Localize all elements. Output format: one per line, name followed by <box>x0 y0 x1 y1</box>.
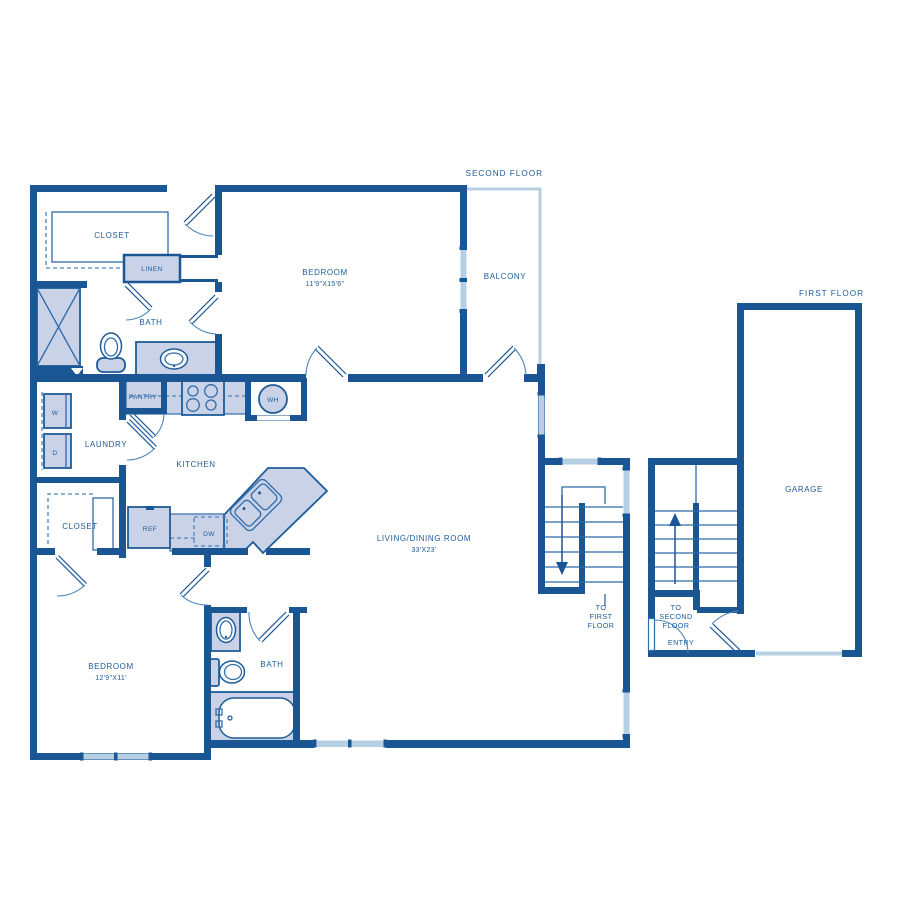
room-dims-bedroom-second: 12'9"X11' <box>95 675 126 682</box>
floor-plan-canvas: SECOND FLOOR FIRST FLOOR CLOSET LINEN BA… <box>0 0 900 900</box>
sink-master-drain <box>173 365 175 367</box>
room-label-bath-master: BATH <box>139 318 162 327</box>
stairwell-top-window <box>561 459 599 465</box>
stairs-note-2f-line1: TO <box>596 603 607 612</box>
stair-arrow-down-head <box>556 562 568 575</box>
room-label-bath-second: BATH <box>260 660 283 669</box>
room-dims-living: 33'X23' <box>411 547 436 554</box>
door-bath-second <box>249 612 289 642</box>
appliance-label-wh: WH <box>267 397 279 404</box>
door-bath-master <box>189 295 218 334</box>
door-closet-master <box>125 283 152 320</box>
appliance-label-dryer: D <box>52 450 57 457</box>
stairs-note-2f-line3: FLOOR <box>588 621 615 630</box>
room-label-closet-master: CLOSET <box>94 231 130 240</box>
stairs-note-1f-line2: SECOND <box>659 612 692 621</box>
appliance-label-washer: W <box>52 410 59 417</box>
stair-arrow-up-head <box>669 513 681 526</box>
toilet-master-base <box>97 358 125 372</box>
kitchen-island <box>224 468 327 553</box>
appliance-label-dw: DW <box>203 531 215 538</box>
stairs-note-1f-line3: FLOOR <box>663 621 690 630</box>
door-garage-entry <box>710 611 740 653</box>
stairs-note-2f-line2: FIRST <box>590 612 613 621</box>
room-label-entry: ENTRY <box>668 638 694 647</box>
appliance-label-ref: REF <box>143 526 157 533</box>
linen-closet <box>124 255 218 282</box>
floor-plan: SECOND FLOOR FIRST FLOOR CLOSET LINEN BA… <box>0 0 900 900</box>
door-laundry <box>127 420 157 461</box>
stairwell-right-window <box>624 469 630 516</box>
living-right-window <box>624 691 630 736</box>
living-side-window <box>539 394 545 436</box>
stair-rail-2f <box>562 487 605 504</box>
room-label-laundry: LAUNDRY <box>85 440 127 449</box>
room-label-kitchen: KITCHEN <box>176 460 215 469</box>
room-label-linen: LINEN <box>141 266 162 273</box>
second-floor-title: SECOND FLOOR <box>465 169 543 178</box>
door-closet-second <box>56 556 87 597</box>
balcony-railing <box>467 189 540 374</box>
door-bedroom-master <box>184 194 215 236</box>
room-dims-bedroom-master: 11'9"X15'6" <box>306 281 345 288</box>
room-label-bedroom-second: BEDROOM <box>88 662 134 671</box>
closet-second-dashes <box>48 494 93 547</box>
first-floor-title: FIRST FLOOR <box>799 289 864 298</box>
toilet-master-icon <box>101 333 122 359</box>
door-bedroom-second <box>180 568 209 605</box>
closet-master-dashes <box>46 212 124 268</box>
garage-door <box>756 652 842 656</box>
room-label-garage: GARAGE <box>785 485 823 494</box>
bath-master-fixtures <box>37 288 217 376</box>
refrigerator-handle <box>146 506 154 510</box>
door-balcony <box>485 346 526 377</box>
room-label-living: LIVING/DINING ROOM <box>377 534 471 543</box>
toilet-second-tank <box>210 659 219 686</box>
room-label-pantry: PANTRY <box>129 394 158 401</box>
stairs-note-1f-line1: TO <box>671 603 682 612</box>
room-label-closet-second: CLOSET <box>62 522 98 531</box>
room-label-bedroom-master: BEDROOM <box>302 268 348 277</box>
wh-door-notch <box>257 416 290 421</box>
room-label-balcony: BALCONY <box>484 272 526 281</box>
bathtub-icon <box>219 698 295 738</box>
door-bedroom-master-entry <box>306 346 346 377</box>
